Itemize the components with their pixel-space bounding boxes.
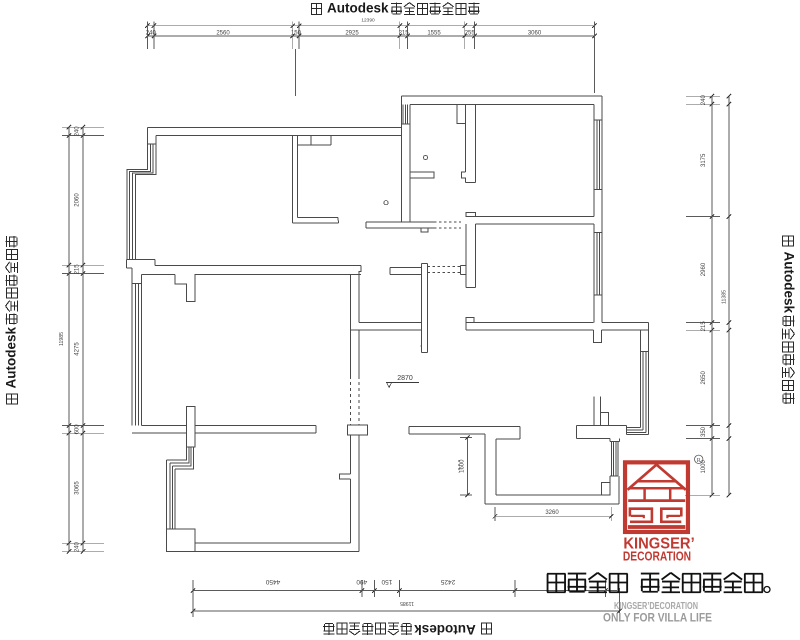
svg-text:3260: 3260 [545, 510, 559, 516]
svg-text:490: 490 [356, 578, 367, 585]
svg-text:1555: 1555 [427, 30, 441, 36]
svg-text:150: 150 [291, 30, 302, 36]
svg-text:12390: 12390 [361, 18, 375, 24]
svg-text:11985: 11985 [400, 600, 414, 606]
svg-text:4275: 4275 [75, 342, 81, 356]
svg-text:215: 215 [75, 264, 81, 275]
svg-text:2960: 2960 [701, 262, 707, 276]
svg-text:11985: 11985 [59, 332, 65, 346]
svg-text:240: 240 [75, 542, 81, 553]
svg-text:2560: 2560 [216, 30, 230, 36]
svg-text:2870: 2870 [397, 375, 413, 382]
svg-text:2650: 2650 [701, 370, 707, 384]
svg-text:215: 215 [399, 30, 410, 36]
svg-text:240: 240 [75, 126, 81, 137]
svg-text:R: R [697, 458, 701, 464]
svg-text:350: 350 [701, 426, 707, 437]
svg-text:3060: 3060 [528, 30, 542, 36]
svg-text:3175: 3175 [701, 153, 707, 167]
svg-text:240: 240 [146, 30, 157, 36]
svg-text:600: 600 [75, 424, 81, 435]
svg-text:11385: 11385 [722, 290, 728, 304]
svg-text:Autodesk: Autodesk [3, 327, 18, 389]
svg-text:DECORATION: DECORATION [623, 550, 691, 564]
svg-text:215: 215 [701, 321, 707, 332]
svg-text:150: 150 [381, 578, 392, 585]
svg-text:240: 240 [701, 95, 707, 106]
svg-text:1600: 1600 [460, 459, 466, 473]
svg-text:3065: 3065 [75, 481, 81, 495]
svg-text:Autodesk: Autodesk [782, 252, 797, 314]
svg-text:2060: 2060 [75, 193, 81, 207]
svg-text:255: 255 [465, 30, 476, 36]
svg-text:Autodesk: Autodesk [327, 0, 389, 15]
svg-text:ONLY FOR VILLA LIFE: ONLY FOR VILLA LIFE [603, 611, 712, 624]
svg-text:4450: 4450 [265, 578, 280, 585]
svg-text:Autodesk: Autodesk [414, 622, 476, 637]
svg-text:2425: 2425 [440, 578, 455, 585]
svg-text:2925: 2925 [345, 30, 359, 36]
